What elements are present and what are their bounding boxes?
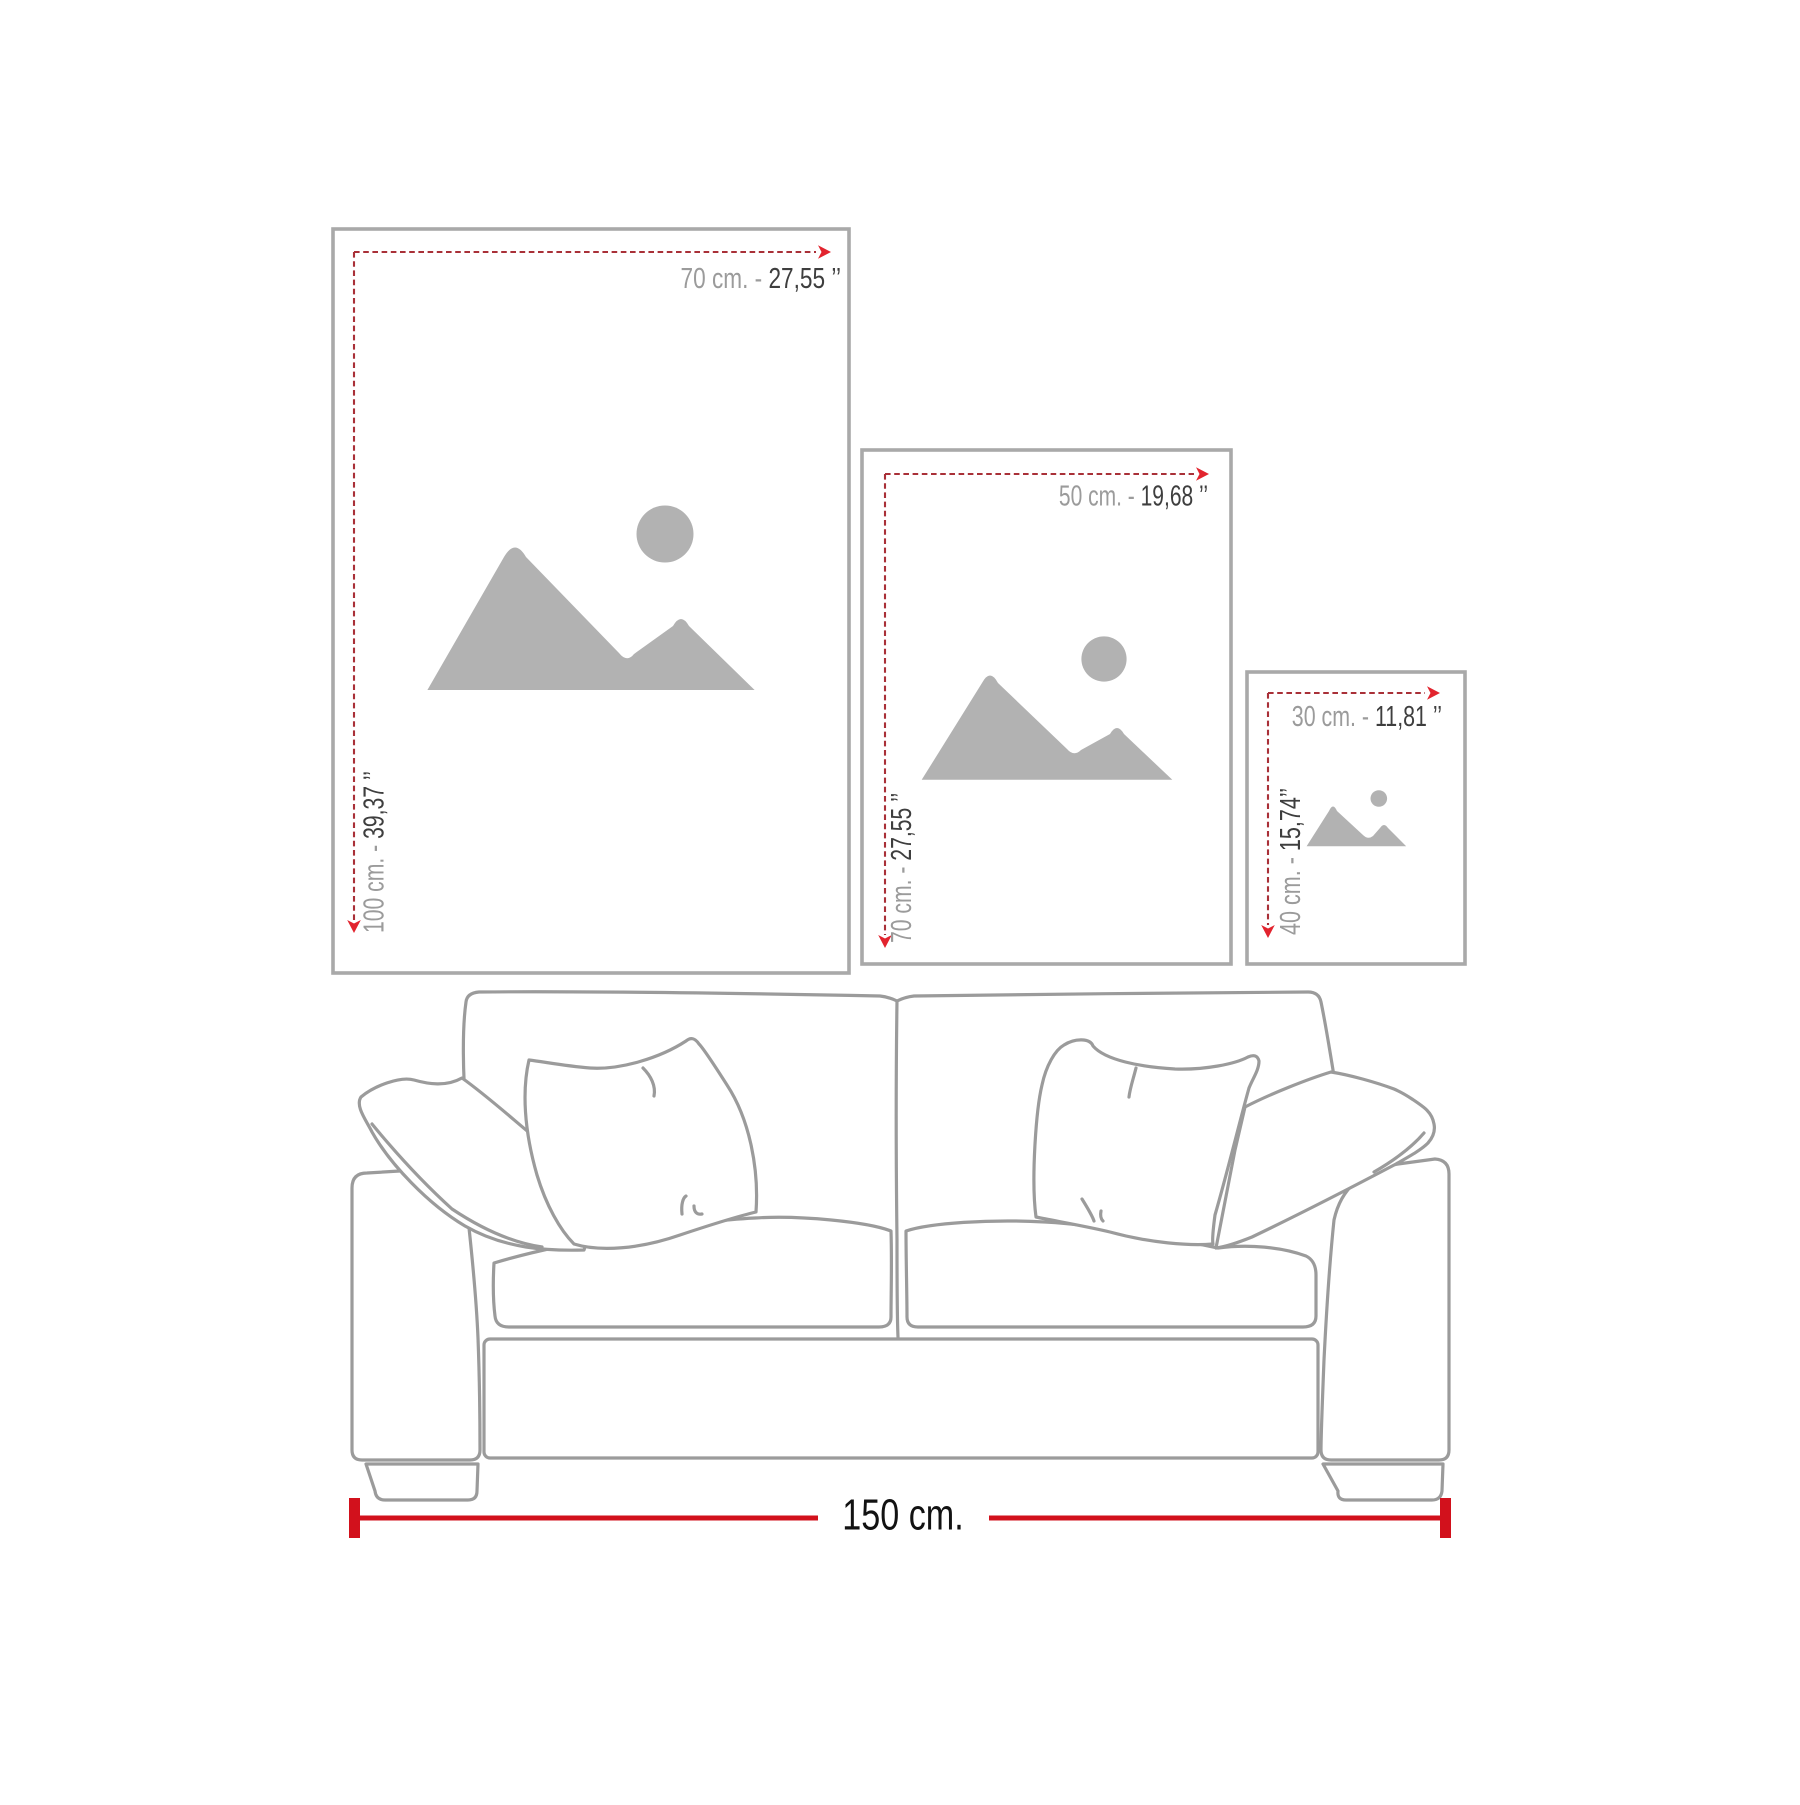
svg-text:70 cm. - 27,55 ’’: 70 cm. - 27,55 ’’ [886, 793, 918, 943]
svg-text:70 cm. - 27,55 ’’: 70 cm. - 27,55 ’’ [681, 261, 841, 294]
svg-text:50 cm. - 19,68 ’’: 50 cm. - 19,68 ’’ [1059, 480, 1208, 512]
svg-text:100 cm. - 39,37 ’’: 100 cm. - 39,37 ’’ [358, 771, 390, 933]
svg-text:40 cm. - 15,74’’: 40 cm. - 15,74’’ [1275, 788, 1307, 935]
svg-text:150 cm.: 150 cm. [842, 1492, 963, 1540]
svg-text:30 cm. - 11,81 ’’: 30 cm. - 11,81 ’’ [1292, 701, 1442, 733]
